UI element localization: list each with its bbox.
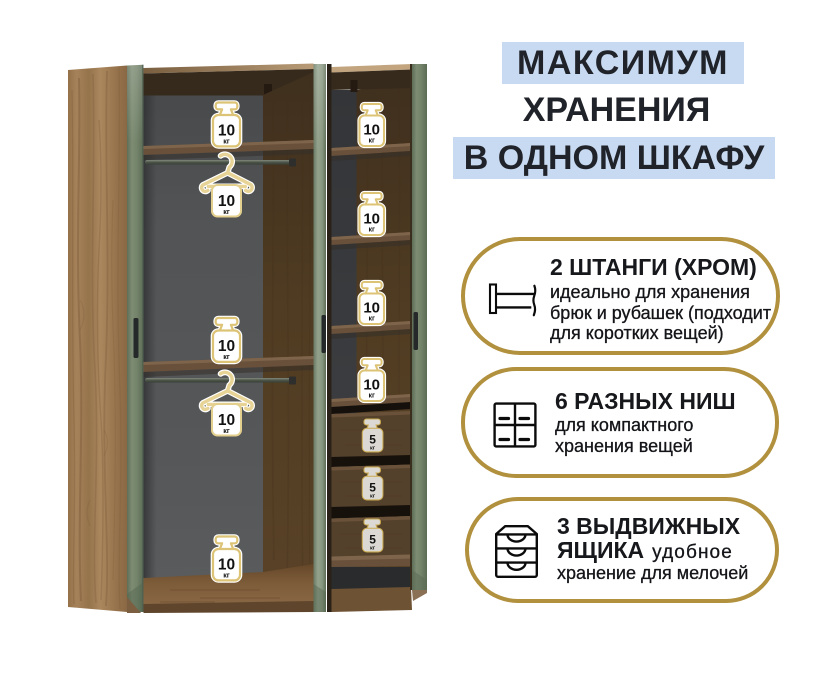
svg-text:кг: кг [368,316,375,323]
svg-text:кг: кг [370,546,376,552]
svg-text:10: 10 [363,300,380,317]
svg-text:5: 5 [369,533,376,547]
svg-text:кг: кг [370,494,376,500]
svg-text:кг: кг [223,426,230,435]
svg-text:кг: кг [368,138,375,145]
svg-text:кг: кг [368,393,375,400]
svg-text:10: 10 [363,377,380,394]
svg-text:5: 5 [369,433,376,447]
svg-text:10: 10 [363,211,380,228]
svg-text:кг: кг [223,571,230,580]
svg-text:кг: кг [223,137,230,146]
svg-text:10: 10 [363,122,380,139]
svg-text:кг: кг [368,227,375,234]
svg-text:кг: кг [223,352,230,361]
svg-text:кг: кг [223,207,230,216]
svg-text:5: 5 [369,481,376,495]
svg-text:кг: кг [370,446,376,452]
